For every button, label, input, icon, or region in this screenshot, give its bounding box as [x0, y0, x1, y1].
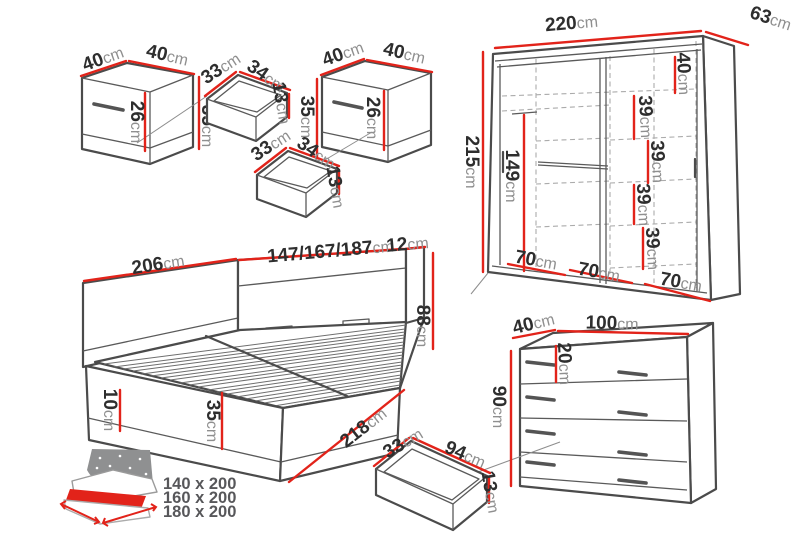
wardrobe-shelf-2-label: 39cm	[646, 140, 669, 184]
legend-size-3: 180 x 200	[163, 503, 236, 521]
nightstand-right-height-label: 35cm	[296, 96, 317, 138]
wardrobe-floor-corner-line	[471, 273, 488, 294]
nightstand-right-front-height-label: 26cm	[362, 97, 383, 139]
furniture-dimensions-diagram: 40cm 40cm 26cm 35cm 33cm 34cm 13cm 40cm …	[0, 0, 800, 533]
wardrobe: 220cm 63cm 215cm 149cm 40cm 39cm 39cm 39…	[461, 2, 794, 301]
wardrobe-depth-label: 63cm	[747, 2, 794, 35]
bed-size-legend-icon	[61, 449, 157, 526]
wardrobe-shelf-4-label: 39cm	[641, 227, 664, 271]
chest-width-label: 100cm	[585, 313, 638, 335]
bed-plinth-height-label: 10cm	[99, 389, 120, 431]
chest-height-label: 90cm	[488, 386, 509, 428]
wardrobe-width-label: 220cm	[544, 11, 599, 37]
bed-side-height-label: 35cm	[202, 400, 223, 442]
nightstand-left-front-height-label: 26cm	[126, 101, 147, 143]
chest-drawer: 33cm 94cm 13cm	[374, 423, 504, 530]
wardrobe-top-shelf-label: 40cm	[672, 52, 695, 96]
bed-headboard-height-label: 88cm	[412, 305, 433, 347]
diagram-canvas: 40cm 40cm 26cm 35cm 33cm 34cm 13cm 40cm …	[0, 0, 800, 533]
wardrobe-shelf-3-label: 39cm	[632, 183, 655, 227]
wardrobe-height-label: 215cm	[461, 135, 482, 188]
chest-top-drawer-height-label: 20cm	[553, 342, 576, 386]
wardrobe-interior-height-label: 149cm	[501, 149, 522, 202]
wardrobe-shelf-1-label: 39cm	[634, 95, 657, 139]
nightstand-left: 40cm 40cm 26cm 35cm	[80, 41, 218, 164]
